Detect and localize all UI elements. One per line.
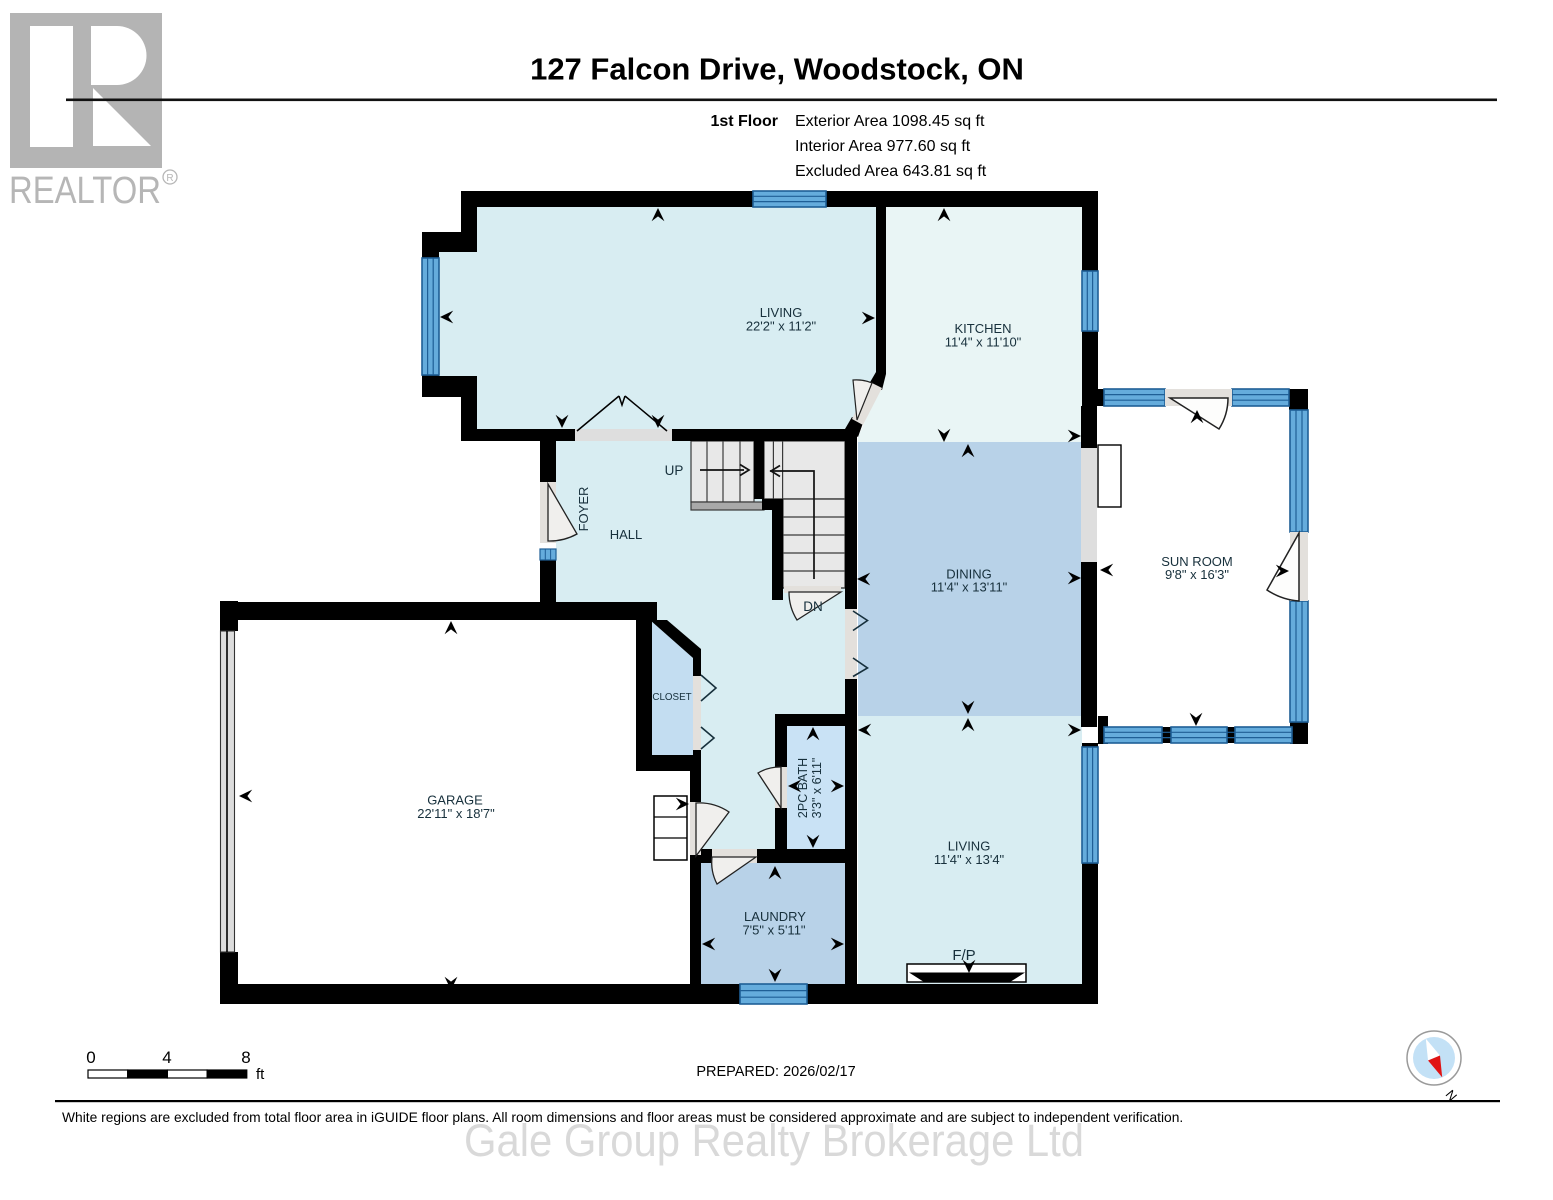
svg-text:8: 8	[241, 1048, 250, 1067]
svg-text:White regions are excluded fro: White regions are excluded from total fl…	[62, 1110, 1183, 1125]
svg-text:R: R	[166, 173, 173, 184]
svg-text:3'3" x 6'11": 3'3" x 6'11"	[810, 758, 824, 819]
svg-text:Excluded Area 643.81 sq ft: Excluded Area 643.81 sq ft	[795, 163, 987, 180]
svg-text:7'5" x 5'11": 7'5" x 5'11"	[742, 923, 805, 938]
svg-text:UP: UP	[665, 463, 684, 478]
svg-text:HALL: HALL	[610, 527, 643, 542]
svg-text:ft: ft	[256, 1066, 265, 1083]
svg-text:4: 4	[162, 1048, 171, 1067]
svg-text:0: 0	[86, 1048, 95, 1067]
svg-text:FOYER: FOYER	[576, 487, 591, 532]
svg-text:22'2" x 11'2": 22'2" x 11'2"	[746, 319, 817, 334]
svg-text:11'4" x 13'4": 11'4" x 13'4"	[934, 852, 1005, 867]
svg-text:Interior Area 977.60 sq ft: Interior Area 977.60 sq ft	[795, 138, 971, 155]
svg-text:PREPARED: 2026/02/17: PREPARED: 2026/02/17	[696, 1064, 855, 1080]
svg-text:2PC BATH: 2PC BATH	[796, 758, 810, 818]
svg-text:REALTOR: REALTOR	[9, 170, 161, 212]
svg-text:Exterior Area 1098.45 sq ft: Exterior Area 1098.45 sq ft	[795, 113, 985, 130]
svg-text:11'4" x 13'11": 11'4" x 13'11"	[931, 580, 1008, 595]
svg-text:9'8" x 16'3": 9'8" x 16'3"	[1165, 567, 1229, 582]
svg-text:1st Floor: 1st Floor	[710, 113, 778, 130]
svg-text:DN: DN	[803, 599, 823, 614]
svg-text:11'4" x 11'10": 11'4" x 11'10"	[945, 335, 1022, 350]
svg-text:127 Falcon Drive, Woodstock, O: 127 Falcon Drive, Woodstock, ON	[530, 52, 1024, 87]
svg-text:22'11" x 18'7": 22'11" x 18'7"	[417, 806, 495, 821]
svg-text:CLOSET: CLOSET	[652, 692, 691, 703]
